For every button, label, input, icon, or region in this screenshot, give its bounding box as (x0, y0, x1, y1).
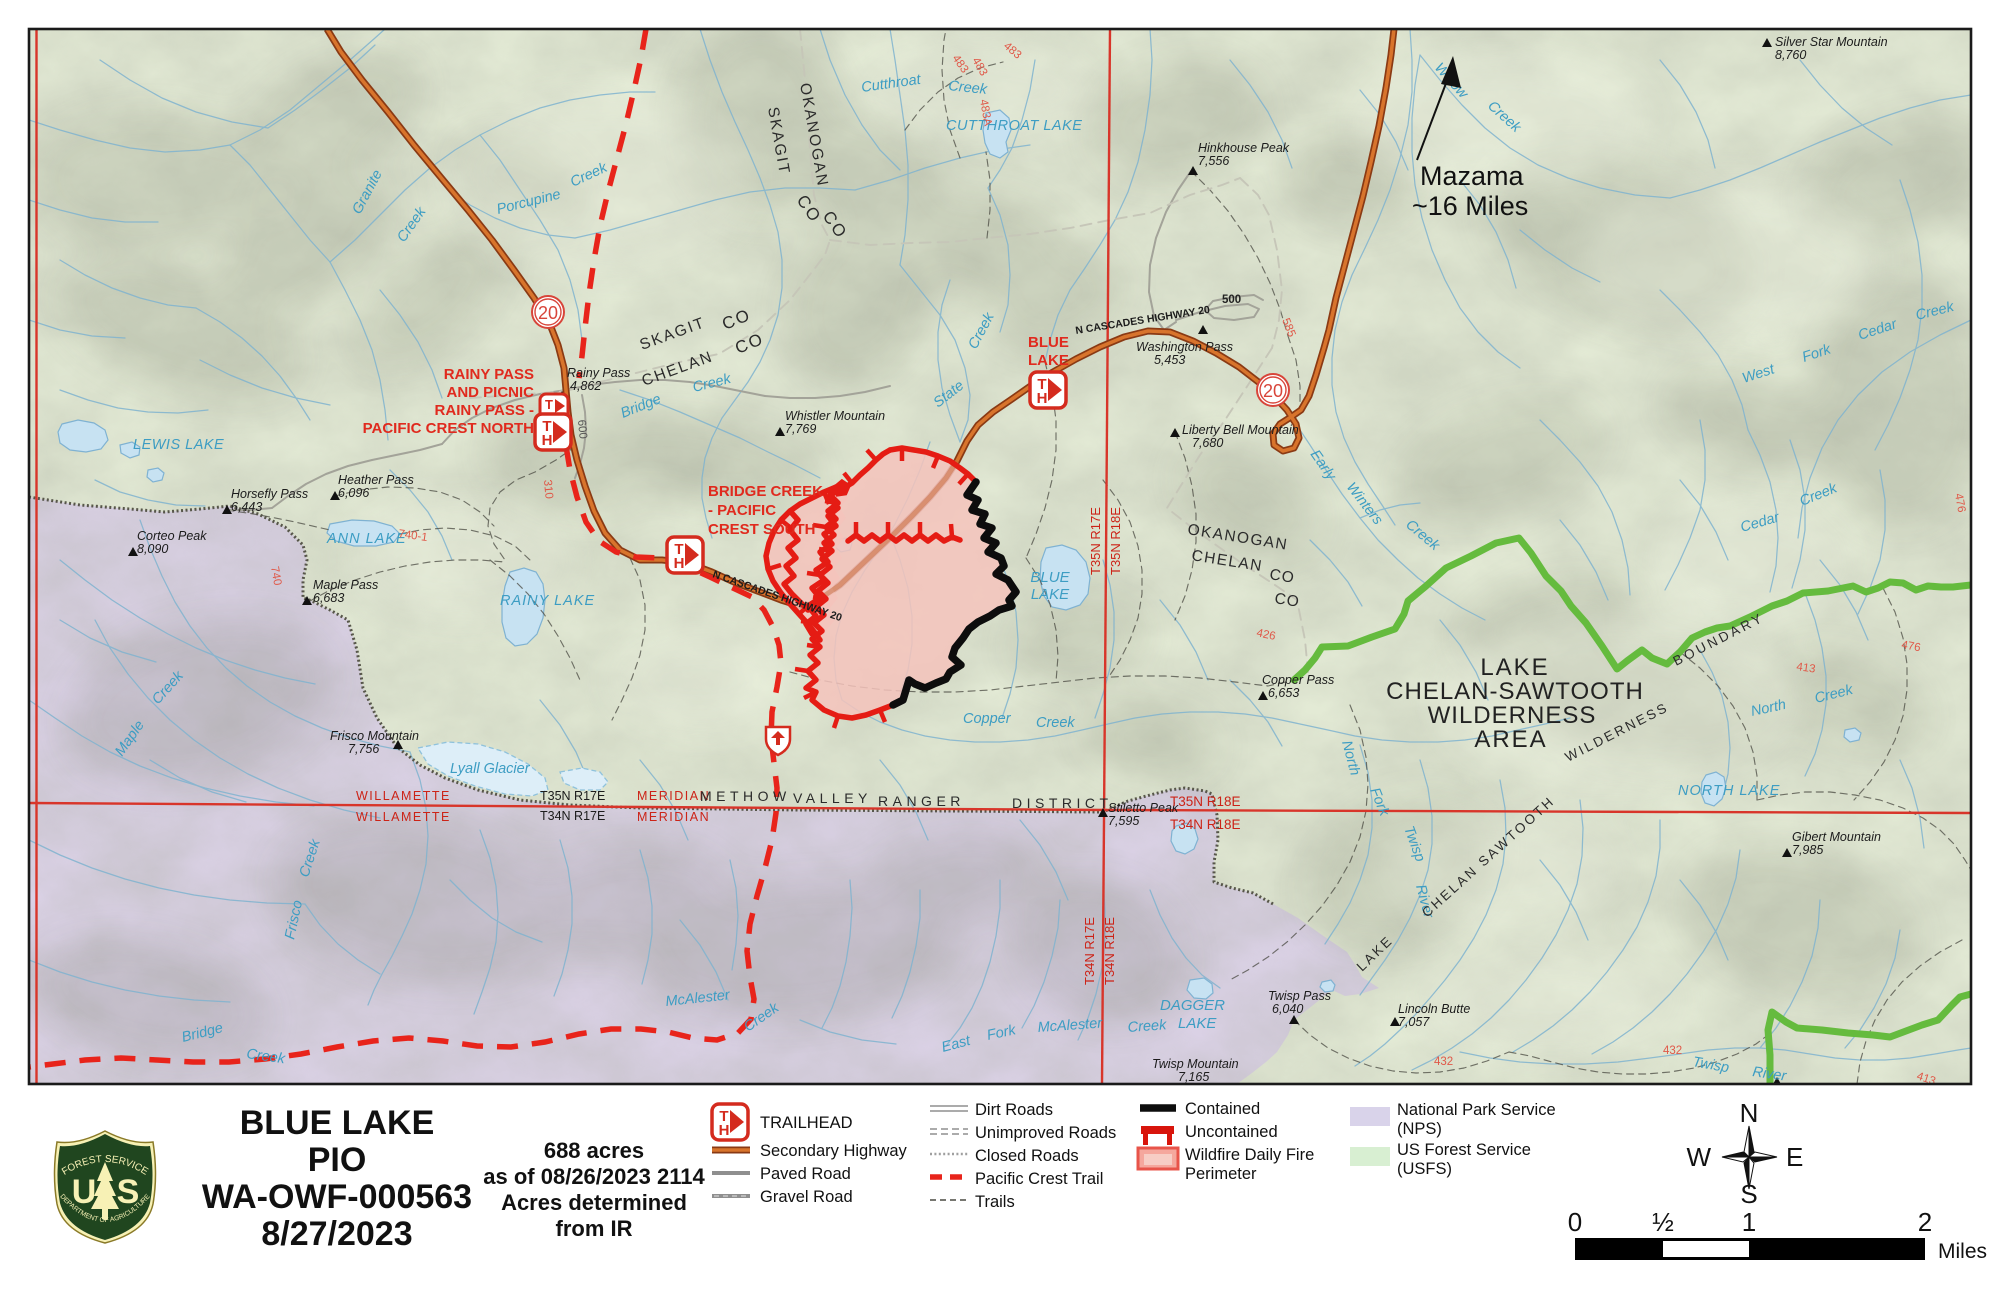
svg-text:(USFS): (USFS) (1397, 1160, 1452, 1178)
svg-text:7,680: 7,680 (1192, 436, 1223, 450)
svg-text:8/27/2023: 8/27/2023 (261, 1215, 412, 1253)
svg-text:6,653: 6,653 (1268, 686, 1299, 700)
svg-text:500: 500 (1222, 294, 1241, 306)
svg-text:20: 20 (1263, 381, 1283, 401)
svg-text:Paved Road: Paved Road (760, 1165, 851, 1183)
svg-text:Hinkhouse Peak: Hinkhouse Peak (1198, 141, 1290, 155)
svg-text:T35N R17E: T35N R17E (540, 789, 605, 803)
svg-text:Maple Pass: Maple Pass (313, 578, 378, 592)
svg-text:Acres determined: Acres determined (501, 1190, 687, 1215)
svg-text:2: 2 (1918, 1207, 1932, 1237)
svg-text:Horsefly Pass: Horsefly Pass (231, 487, 308, 501)
svg-text:T34N R18E: T34N R18E (1102, 917, 1117, 985)
svg-text:310: 310 (541, 479, 555, 499)
svg-text:WILDERNESS: WILDERNESS (1428, 702, 1597, 729)
svg-text:W: W (1686, 1142, 1711, 1172)
svg-text:Silver Star Mountain: Silver Star Mountain (1775, 35, 1888, 49)
svg-text:ANN LAKE: ANN LAKE (326, 531, 407, 547)
svg-text:LAKE: LAKE (1480, 654, 1549, 681)
svg-text:Secondary Highway: Secondary Highway (760, 1142, 907, 1160)
svg-text:LEWIS LAKE: LEWIS LAKE (133, 437, 224, 453)
svg-text:PIO: PIO (308, 1141, 367, 1179)
svg-text:Corteo Peak: Corteo Peak (137, 529, 207, 543)
svg-text:LAKE: LAKE (1178, 1015, 1217, 1032)
svg-text:5,453: 5,453 (1154, 353, 1185, 367)
svg-text:7,595: 7,595 (1108, 814, 1139, 828)
svg-text:Creek: Creek (1036, 715, 1075, 731)
svg-text:T34N R18E: T34N R18E (1170, 817, 1241, 832)
svg-text:8,760: 8,760 (1775, 48, 1806, 62)
svg-text:BLUE: BLUE (1030, 569, 1070, 586)
svg-text:BRIDGE CREEK: BRIDGE CREEK (708, 483, 823, 500)
svg-text:US Forest Service: US Forest Service (1397, 1141, 1531, 1159)
svg-text:Copper Pass: Copper Pass (1262, 673, 1334, 687)
svg-text:6,040: 6,040 (1272, 1002, 1303, 1016)
svg-text:Copper: Copper (963, 711, 1012, 727)
svg-text:AND PICNIC: AND PICNIC (446, 384, 534, 401)
svg-text:T: T (545, 397, 553, 412)
svg-text:7,556: 7,556 (1198, 154, 1229, 168)
svg-text:Perimeter: Perimeter (1185, 1165, 1257, 1183)
svg-text:METHOW: METHOW (700, 788, 791, 804)
svg-text:Frisco Mountain: Frisco Mountain (330, 729, 419, 743)
svg-text:688 acres: 688 acres (544, 1138, 644, 1163)
svg-text:NORTH LAKE: NORTH LAKE (1678, 783, 1780, 799)
svg-text:T35N R17E: T35N R17E (1088, 507, 1103, 575)
svg-text:N: N (1740, 1098, 1759, 1128)
svg-text:7,057: 7,057 (1398, 1015, 1430, 1029)
svg-text:H: H (1037, 390, 1048, 407)
svg-text:DAGGER: DAGGER (1160, 997, 1225, 1014)
svg-text:TRAILHEAD: TRAILHEAD (760, 1114, 853, 1132)
svg-text:8,090: 8,090 (137, 542, 168, 556)
svg-text:MERIDIAN: MERIDIAN (637, 810, 710, 824)
svg-text:(NPS): (NPS) (1397, 1120, 1442, 1138)
svg-text:Liberty Bell Mountain: Liberty Bell Mountain (1182, 423, 1299, 437)
svg-text:Twisp Mountain: Twisp Mountain (1152, 1057, 1239, 1071)
svg-text:H: H (542, 432, 553, 449)
svg-text:WILLAMETTE: WILLAMETTE (356, 789, 451, 803)
svg-text:Stiletto Peak: Stiletto Peak (1108, 801, 1179, 815)
svg-text:BLUE LAKE: BLUE LAKE (240, 1104, 435, 1142)
svg-text:VALLEY: VALLEY (793, 790, 872, 806)
svg-text:Washington Pass: Washington Pass (1136, 340, 1233, 354)
svg-text:WILLAMETTE: WILLAMETTE (356, 810, 451, 824)
svg-text:E: E (1786, 1142, 1803, 1172)
svg-text:½: ½ (1652, 1207, 1674, 1237)
svg-text:6,096: 6,096 (338, 486, 369, 500)
svg-text:RAINY PASS -: RAINY PASS - (435, 402, 534, 419)
svg-text:- PACIFIC: - PACIFIC (708, 502, 776, 519)
svg-text:Wildfire Daily Fire: Wildfire Daily Fire (1185, 1146, 1314, 1164)
svg-text:CUTTHROAT LAKE: CUTTHROAT LAKE (946, 118, 1082, 134)
svg-text:0: 0 (1568, 1207, 1582, 1237)
svg-text:H: H (674, 555, 685, 572)
svg-text:DISTRICT: DISTRICT (1012, 795, 1113, 811)
svg-text:WA-OWF-000563: WA-OWF-000563 (202, 1178, 472, 1216)
svg-text:BLUE: BLUE (1028, 334, 1069, 351)
svg-text:20: 20 (538, 303, 558, 323)
svg-text:7,985: 7,985 (1792, 843, 1823, 857)
svg-text:Heather Pass: Heather Pass (338, 473, 414, 487)
svg-text:RAINY LAKE: RAINY LAKE (500, 593, 595, 609)
svg-text:7,769: 7,769 (785, 422, 816, 436)
svg-text:Unimproved Roads: Unimproved Roads (975, 1124, 1116, 1142)
svg-text:H: H (719, 1122, 730, 1139)
svg-text:6,443: 6,443 (231, 500, 262, 514)
svg-text:CHELAN-SAWTOOTH: CHELAN-SAWTOOTH (1386, 678, 1644, 705)
svg-text:T35N R18E: T35N R18E (1170, 794, 1241, 809)
svg-text:CREST SOUTH: CREST SOUTH (708, 521, 816, 538)
svg-text:RAINY PASS: RAINY PASS (444, 366, 534, 383)
svg-text:Mazama: Mazama (1420, 161, 1525, 191)
svg-text:Rainy Pass: Rainy Pass (567, 366, 630, 380)
svg-text:Creek: Creek (1127, 1017, 1167, 1036)
svg-text:LAKE: LAKE (1031, 586, 1070, 603)
svg-text:RANGER: RANGER (878, 793, 965, 809)
svg-text:Dirt Roads: Dirt Roads (975, 1101, 1053, 1119)
svg-text:432: 432 (1663, 1045, 1682, 1057)
svg-text:T34N R17E: T34N R17E (1082, 917, 1097, 985)
svg-text:Gibert Mountain: Gibert Mountain (1792, 830, 1881, 844)
svg-text:National Park Service: National Park Service (1397, 1101, 1556, 1119)
svg-text:Gravel Road: Gravel Road (760, 1188, 853, 1206)
svg-text:1: 1 (1742, 1207, 1756, 1237)
svg-text:Lyall Glacier: Lyall Glacier (450, 761, 531, 777)
svg-text:432: 432 (1434, 1056, 1453, 1068)
svg-text:6,683: 6,683 (313, 591, 344, 605)
svg-text:Pacific Crest Trail: Pacific Crest Trail (975, 1170, 1103, 1188)
svg-text:7,756: 7,756 (348, 742, 379, 756)
svg-text:Contained: Contained (1185, 1100, 1260, 1118)
svg-text:Twisp Pass: Twisp Pass (1268, 989, 1331, 1003)
svg-text:LAKE: LAKE (1028, 352, 1069, 369)
svg-text:Whistler Mountain: Whistler Mountain (785, 409, 885, 423)
svg-text:from IR: from IR (556, 1216, 633, 1241)
svg-text:PACIFIC CREST NORTH: PACIFIC CREST NORTH (363, 420, 534, 437)
svg-text:as of 08/26/2023 2114: as of 08/26/2023 2114 (483, 1164, 705, 1189)
svg-text:7,165: 7,165 (1178, 1070, 1209, 1084)
svg-text:4,862: 4,862 (570, 379, 601, 393)
svg-text:600: 600 (575, 419, 589, 439)
svg-text:T34N R17E: T34N R17E (540, 809, 605, 823)
svg-text:Trails: Trails (975, 1193, 1015, 1211)
svg-text:T35N R18E: T35N R18E (1108, 507, 1123, 575)
svg-text:Closed Roads: Closed Roads (975, 1147, 1079, 1165)
svg-text:Lincoln Butte: Lincoln Butte (1398, 1002, 1470, 1016)
svg-text:Miles: Miles (1938, 1240, 1987, 1263)
svg-text:Uncontained: Uncontained (1185, 1123, 1278, 1141)
svg-text:~16 Miles: ~16 Miles (1412, 191, 1528, 221)
svg-text:AREA: AREA (1474, 726, 1547, 753)
